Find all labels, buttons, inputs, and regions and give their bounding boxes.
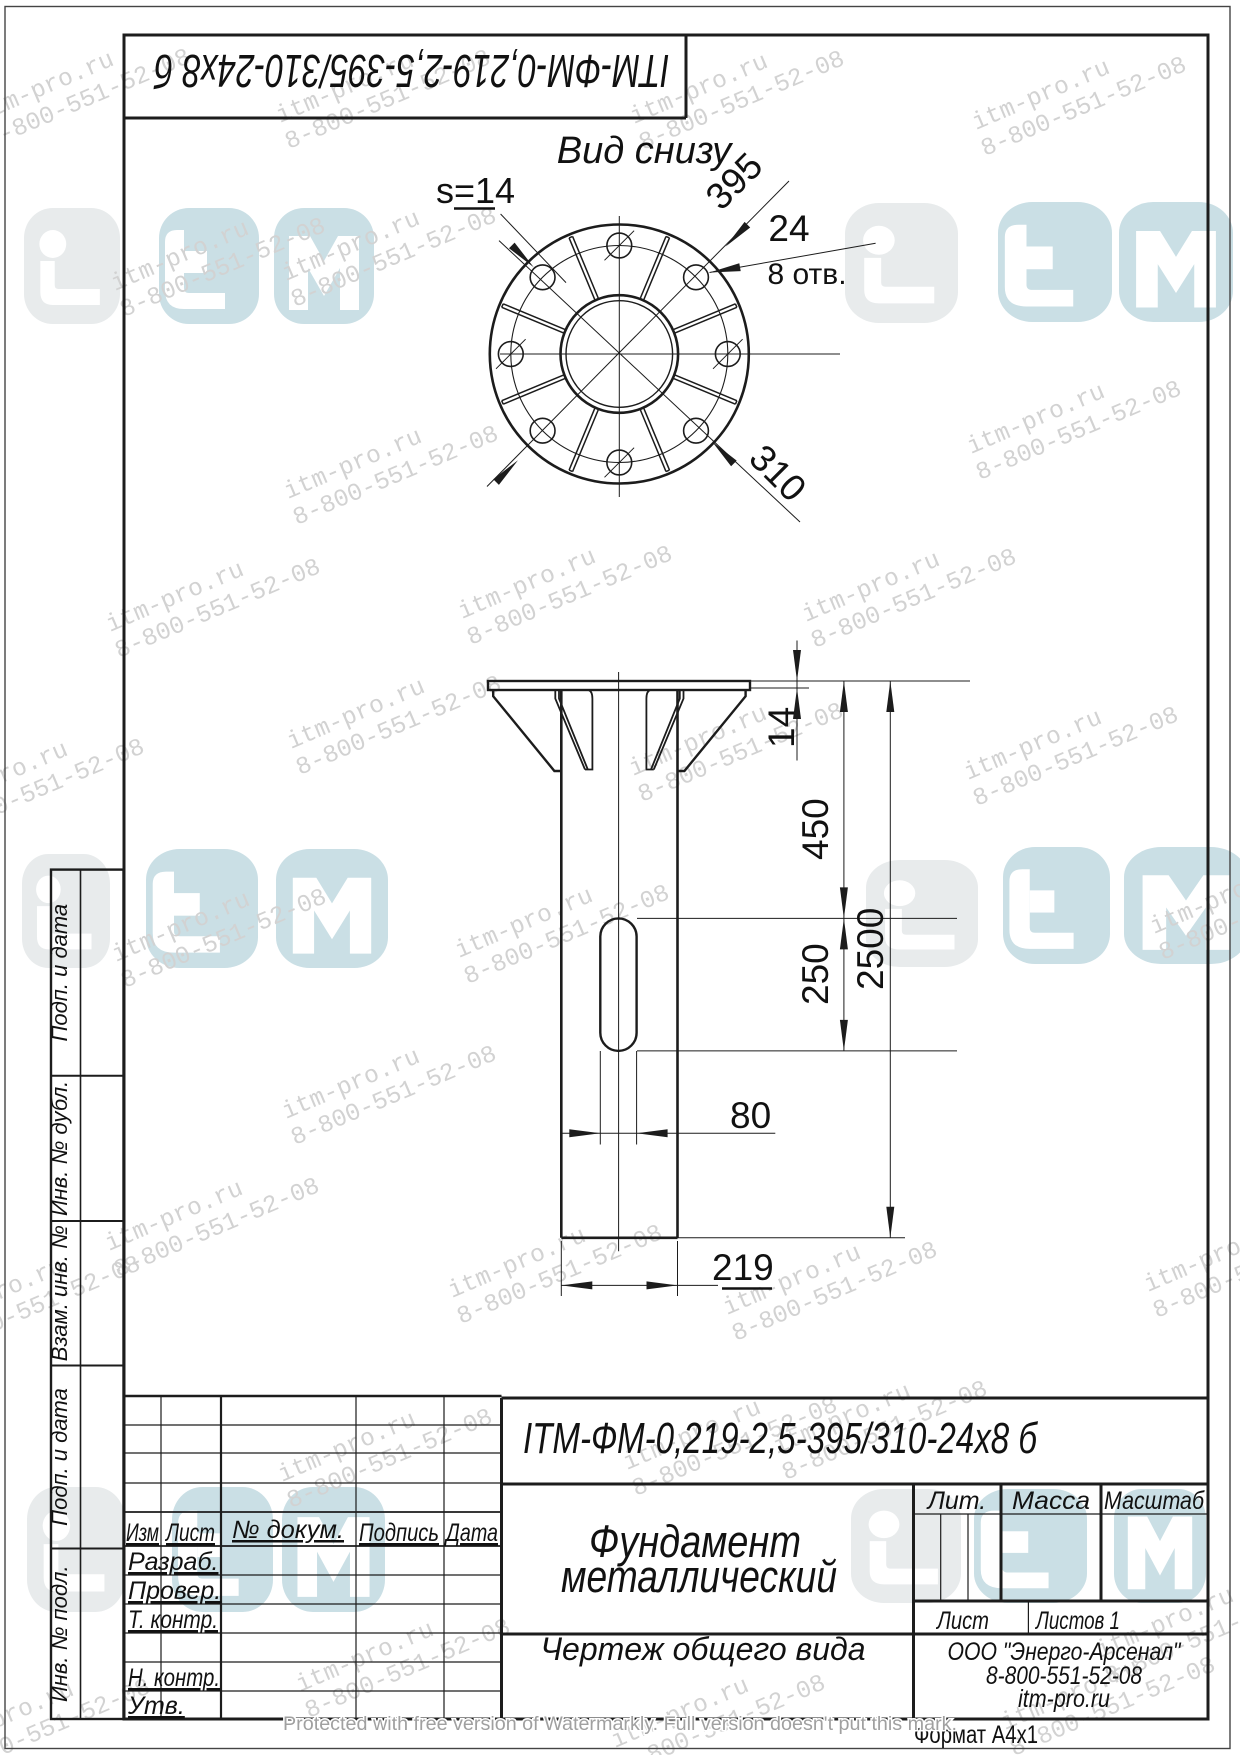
svg-text:14: 14 <box>761 707 802 748</box>
svg-text:Масса: Масса <box>1012 1487 1090 1515</box>
svg-text:Т. контр.: Т. контр. <box>128 1606 218 1634</box>
svg-text:Взам. инв. №: Взам. инв. № <box>47 1225 72 1361</box>
svg-text:Дата: Дата <box>444 1519 498 1547</box>
svg-text:Подп. и дата: Подп. и дата <box>47 904 72 1042</box>
svg-text:80: 80 <box>730 1095 771 1136</box>
svg-text:Утв.: Утв. <box>127 1692 185 1720</box>
svg-text:ITM-ФМ-0,219-2,5-395/310-24x8: ITM-ФМ-0,219-2,5-395/310-24x8 б <box>153 45 670 97</box>
svg-text:2500: 2500 <box>850 908 891 990</box>
svg-text:219: 219 <box>712 1247 774 1288</box>
svg-text:Лит.: Лит. <box>926 1487 987 1515</box>
svg-text:8 отв.: 8 отв. <box>767 258 846 291</box>
svg-text:Лист: Лист <box>935 1607 989 1635</box>
svg-text:250: 250 <box>795 943 836 1005</box>
svg-text:s=14: s=14 <box>436 170 515 211</box>
svg-text:Protected with free version of: Protected with free version of Watermark… <box>283 1713 957 1735</box>
svg-text:24: 24 <box>768 208 809 249</box>
svg-text:Изм: Изм <box>126 1519 159 1547</box>
svg-text:Листов 1: Листов 1 <box>1034 1607 1120 1635</box>
svg-text:Масштаб: Масштаб <box>1104 1487 1205 1515</box>
svg-text:Вид снизу: Вид снизу <box>557 130 733 172</box>
svg-text:Подп. и дата: Подп. и дата <box>47 1388 72 1526</box>
svg-text:Инв. № дубл.: Инв. № дубл. <box>47 1081 72 1216</box>
svg-text:Инв. № подл.: Инв. № подл. <box>47 1565 72 1702</box>
svg-text:Разраб.: Разраб. <box>128 1548 218 1576</box>
svg-text:Провер.: Провер. <box>128 1577 221 1605</box>
svg-text:itm-pro.ru: itm-pro.ru <box>1018 1685 1110 1713</box>
svg-text:Н. контр.: Н. контр. <box>128 1664 220 1692</box>
svg-text:металлический: металлический <box>561 1551 837 1602</box>
svg-text:Чертеж общего вида: Чертеж общего вида <box>540 1631 865 1667</box>
svg-text:450: 450 <box>795 798 836 860</box>
svg-text:ITM-ФМ-0,219-2,5-395/310-24x8: ITM-ФМ-0,219-2,5-395/310-24x8 б <box>523 1414 1039 1463</box>
svg-text:№ докум.: № докум. <box>232 1516 344 1544</box>
svg-text:Подпись: Подпись <box>359 1519 439 1547</box>
svg-text:Лист: Лист <box>164 1519 215 1547</box>
